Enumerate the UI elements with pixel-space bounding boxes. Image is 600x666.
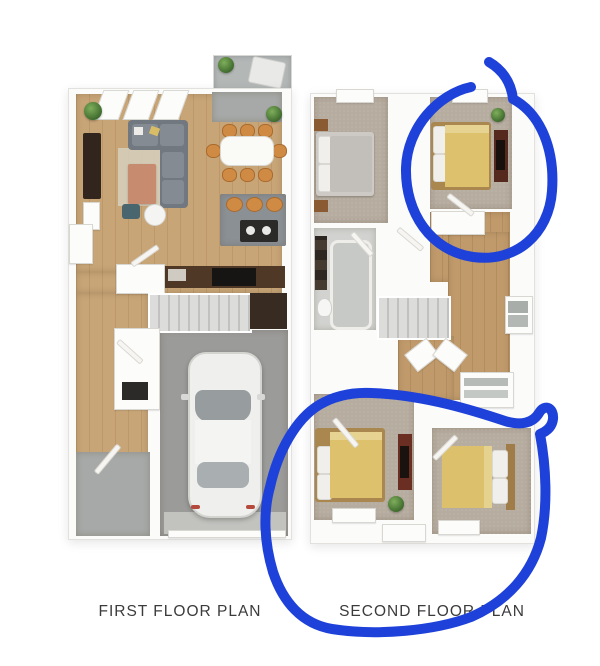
- side-mirror-icon: [181, 394, 189, 400]
- ottoman: [122, 204, 140, 219]
- closet-shelf: [431, 211, 485, 235]
- dining-table: [220, 136, 274, 166]
- blanket-fold: [445, 125, 489, 133]
- second-floor-label: SECOND FLOOR PLAN: [320, 603, 544, 621]
- nightstand: [314, 200, 328, 212]
- side-table: [144, 204, 166, 226]
- dining-chair: [240, 168, 255, 182]
- blanket: [330, 136, 372, 192]
- bar-stool: [246, 197, 263, 212]
- windshield: [195, 390, 251, 422]
- pillow: [492, 478, 508, 504]
- pillow: [492, 450, 508, 478]
- throw-pillow: [134, 127, 143, 135]
- living-room-plant-icon: [84, 102, 102, 120]
- blanket-fold: [484, 446, 492, 508]
- window-icon: [438, 520, 480, 535]
- under-stair-closet: [250, 293, 287, 329]
- tv-cabinet: [83, 133, 101, 199]
- bed-yellow: [445, 125, 489, 187]
- kitchen-sink: [168, 269, 186, 281]
- window-pane-icon: [508, 315, 528, 327]
- dining-chair: [272, 144, 287, 158]
- rear-window: [197, 462, 249, 488]
- side-mirror-icon: [257, 394, 265, 400]
- first-floor-label: FIRST FLOOR PLAN: [68, 603, 292, 621]
- dresser-tv-icon: [400, 446, 409, 478]
- closet-shelf: [382, 524, 426, 542]
- dining-chair: [222, 168, 237, 182]
- washer: [122, 382, 148, 400]
- blanket-fold: [330, 432, 382, 440]
- staircase-first-floor: [148, 293, 252, 333]
- dresser-tv-icon: [496, 140, 505, 170]
- bedroom-plant-icon: [388, 496, 404, 512]
- window-icon: [336, 89, 374, 103]
- closet-shelf: [464, 390, 508, 398]
- dining-chair: [258, 168, 273, 182]
- bar-stool: [266, 197, 283, 212]
- staircase-second-floor: [377, 296, 451, 340]
- sofa-cushion: [160, 124, 184, 146]
- dining-chair: [206, 144, 221, 158]
- garage-door: [168, 530, 286, 538]
- vanity: [315, 236, 327, 290]
- window-icon: [452, 89, 488, 103]
- window-pane-icon: [508, 301, 528, 313]
- toilet: [317, 298, 332, 317]
- closet-shelf: [464, 378, 508, 386]
- sofa-cushion: [162, 152, 184, 178]
- bar-stool: [226, 197, 243, 212]
- burner-icon: [246, 226, 255, 235]
- entry-floor: [76, 452, 150, 536]
- side-window: [69, 224, 93, 264]
- wall-oven: [212, 268, 256, 286]
- window-icon: [332, 508, 376, 523]
- bedroom-plant-icon: [491, 108, 505, 122]
- dining-plant-icon: [266, 106, 282, 122]
- nightstand: [314, 119, 328, 131]
- pantry: [116, 264, 165, 294]
- sofa-cushion: [162, 180, 184, 204]
- coffee-table: [128, 164, 156, 204]
- burner-icon: [262, 226, 271, 235]
- taillight-icon: [246, 505, 255, 509]
- car-roof: [195, 420, 251, 464]
- floor-plan-image: FIRST FLOOR PLAN SECOND FLOOR PLAN: [0, 0, 600, 666]
- patio-plant-icon: [218, 57, 234, 73]
- taillight-icon: [191, 505, 200, 509]
